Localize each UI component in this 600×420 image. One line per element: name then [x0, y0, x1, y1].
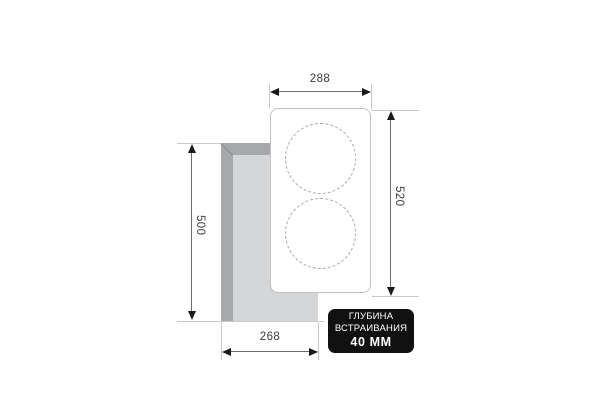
ext-line-panel-width-right [371, 84, 372, 110]
badge-depth-value: 40 ММ [350, 335, 391, 350]
dim-line-cutout-width [224, 351, 317, 352]
dim-line-panel-width [272, 91, 369, 92]
arrow-left-icon [270, 88, 279, 96]
installation-depth-badge: ГЛУБИНА ВСТРАИВАНИЯ 40 ММ [328, 309, 414, 353]
arrow-right-icon [309, 348, 318, 356]
dim-label-panel-height: 520 [393, 186, 405, 206]
burner-zone-bottom [285, 198, 356, 269]
arrow-right-icon [362, 88, 371, 96]
arrow-left-icon [222, 348, 231, 356]
ext-line-panel-height-bottom [372, 296, 419, 297]
installation-dimension-diagram: 288 520 500 268 ГЛУБИНА ВСТРАИВАНИЯ 40 М… [0, 0, 600, 420]
ext-line-cutout-height-bottom [177, 321, 324, 322]
arrow-down-icon [188, 311, 196, 320]
burner-zone-top [285, 123, 356, 194]
ext-line-cutout-width-right [318, 323, 319, 360]
arrow-down-icon [387, 287, 395, 296]
dim-line-panel-height [390, 113, 391, 294]
badge-line-2: ВСТРАИВАНИЯ [335, 324, 407, 335]
cutout-left-wall [221, 143, 233, 321]
ext-line-panel-height-top [372, 110, 419, 111]
cooktop-panel [270, 108, 371, 293]
dim-line-cutout-height [191, 146, 192, 318]
dim-label-cutout-height: 500 [194, 215, 206, 235]
arrow-up-icon [188, 144, 196, 153]
dim-label-cutout-width: 268 [240, 331, 300, 343]
badge-line-1: ГЛУБИНА [349, 312, 394, 323]
arrow-up-icon [387, 111, 395, 120]
dim-label-panel-width: 288 [290, 73, 350, 85]
ext-line-cutout-height-top [177, 143, 221, 144]
